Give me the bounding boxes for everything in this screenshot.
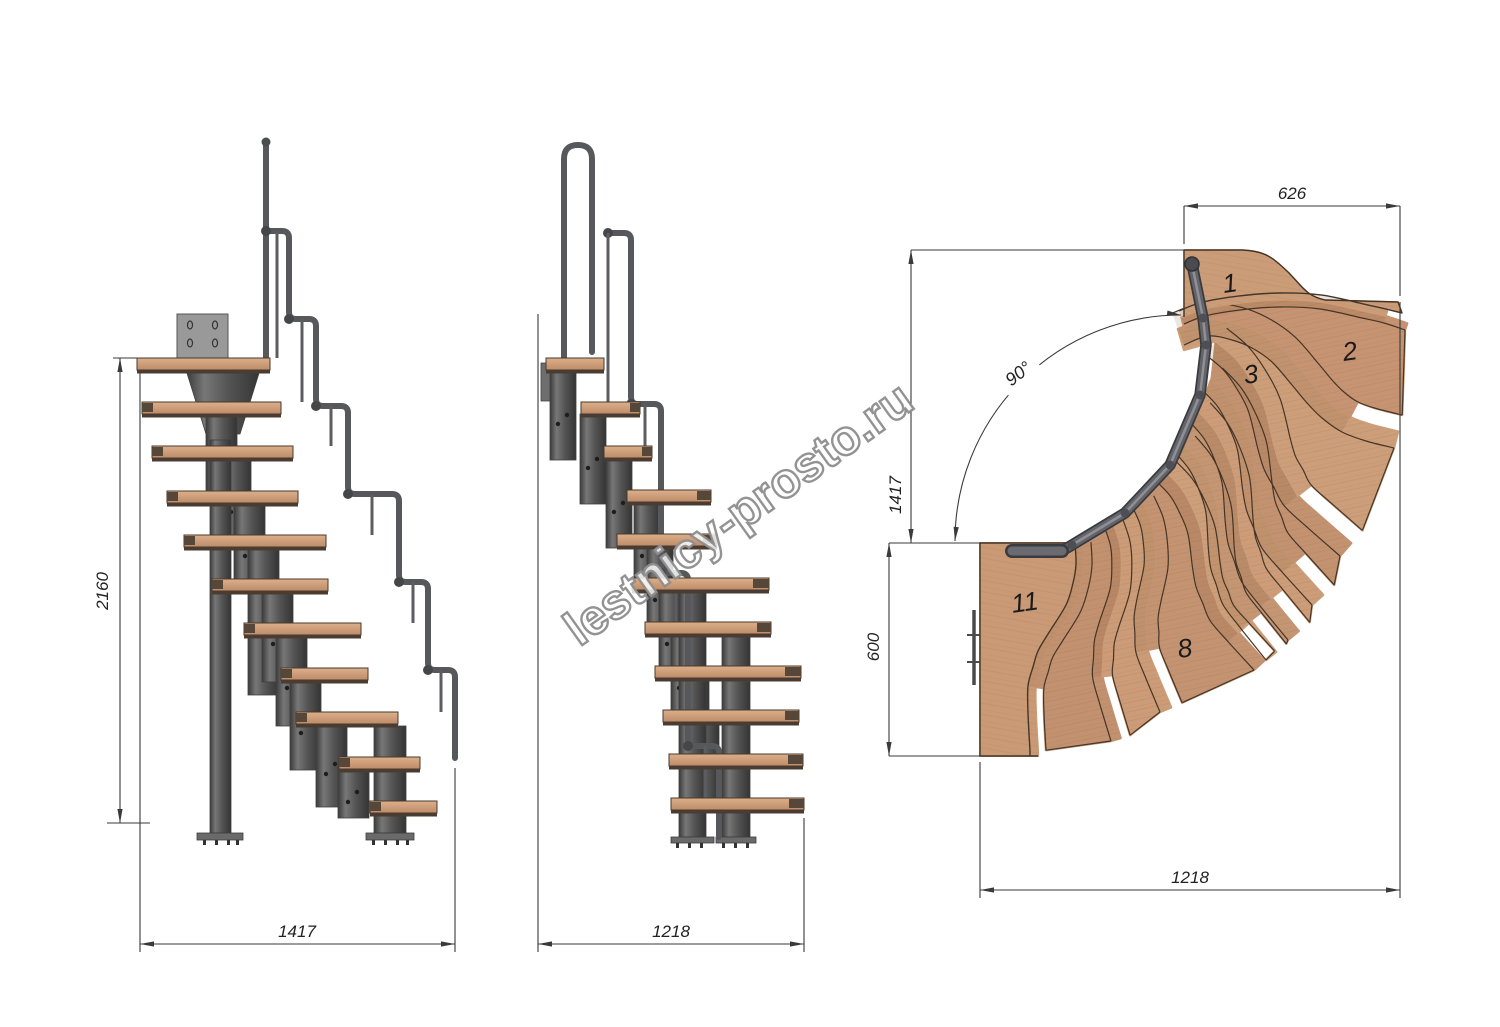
svg-text:626: 626 (1278, 184, 1307, 203)
svg-text:1417: 1417 (886, 476, 905, 514)
svg-text:11: 11 (1009, 585, 1040, 618)
svg-text:1417: 1417 (278, 922, 316, 941)
svg-text:600: 600 (864, 632, 883, 661)
svg-text:2160: 2160 (93, 572, 112, 611)
svg-text:1218: 1218 (1171, 868, 1209, 887)
svg-text:1218: 1218 (652, 922, 690, 941)
